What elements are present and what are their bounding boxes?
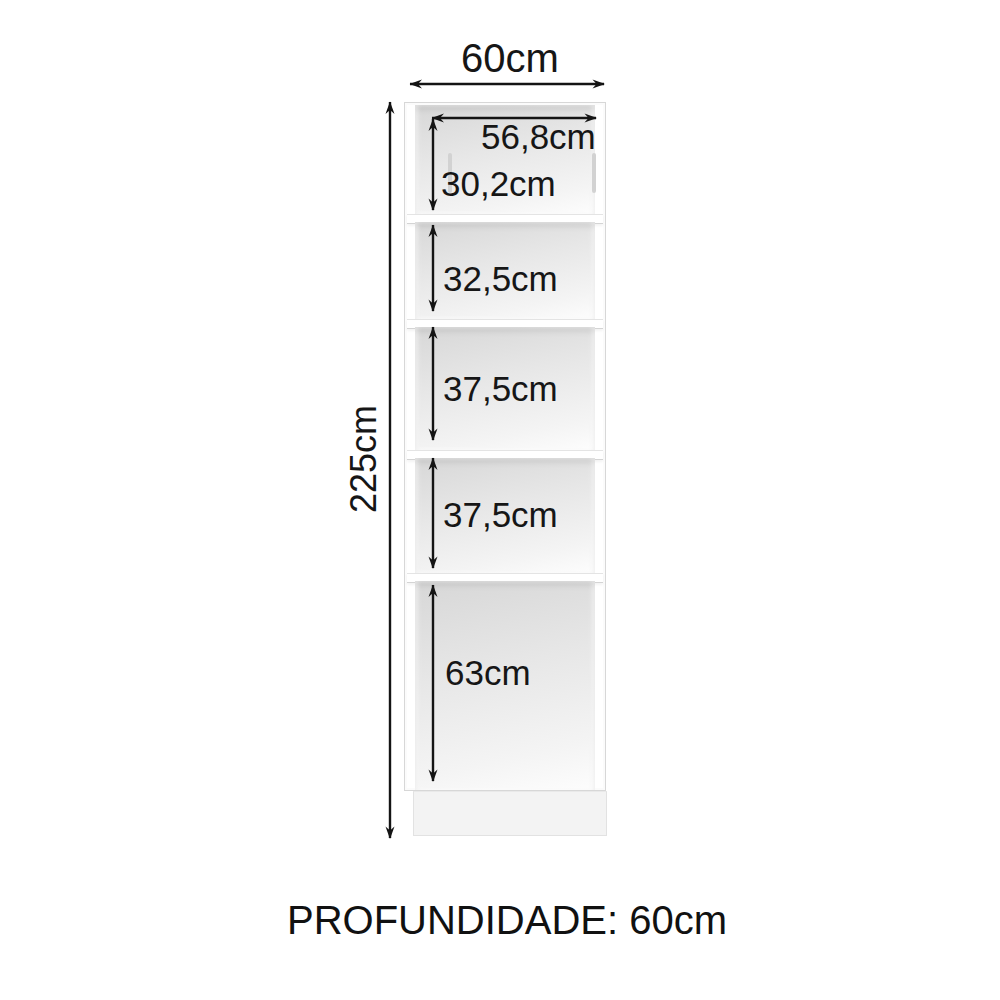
compartment-3-label: 37,5cm — [443, 370, 558, 409]
compartment-5-label: 63cm — [445, 654, 531, 693]
outer-width-label: 60cm — [461, 36, 559, 80]
inner-width-label: 56,8cm — [481, 118, 596, 157]
cabinet-base-plinth — [413, 791, 607, 836]
depth-note: PROFUNDIDADE: 60cm — [287, 898, 727, 943]
total-height-label: 225cm — [344, 405, 384, 513]
shelf-hardware-right — [592, 153, 596, 193]
compartment-4-label: 37,5cm — [443, 496, 558, 535]
compartment-1-label: 30,2cm — [441, 165, 556, 204]
compartment-2-label: 32,5cm — [443, 260, 558, 299]
dimension-diagram: 60cm 225cm 56,8cm 30,2cm 32,5cm 37,5cm 3… — [0, 0, 1000, 1000]
